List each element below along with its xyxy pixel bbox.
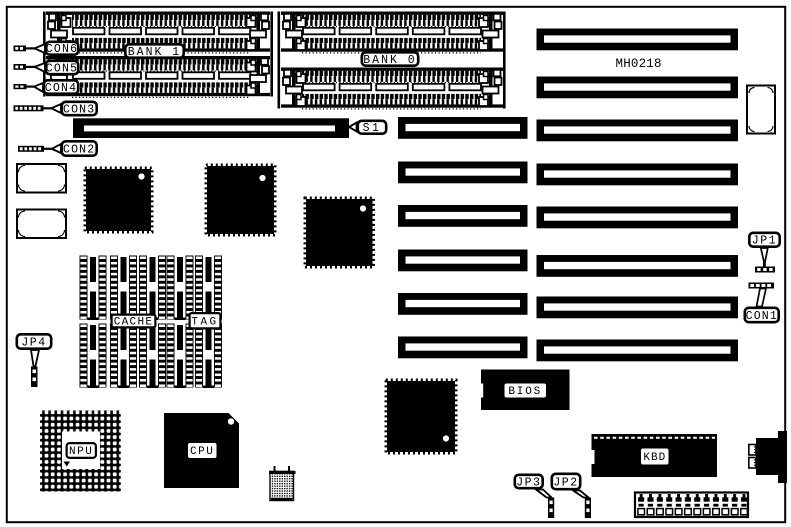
svg-text:CPU: CPU bbox=[190, 446, 214, 458]
svg-text:CACHE: CACHE bbox=[114, 317, 154, 329]
svg-text:NPU: NPU bbox=[69, 446, 93, 458]
svg-text:JP2: JP2 bbox=[553, 476, 578, 489]
svg-text:CON4: CON4 bbox=[45, 82, 77, 95]
svg-text:TAG: TAG bbox=[191, 317, 218, 329]
svg-text:KBD: KBD bbox=[643, 452, 666, 464]
svg-text:JP1: JP1 bbox=[752, 235, 777, 248]
svg-text:S1: S1 bbox=[363, 122, 382, 135]
svg-text:JP3: JP3 bbox=[516, 476, 541, 489]
svg-text:CON1: CON1 bbox=[746, 310, 778, 323]
svg-text:BANK 1: BANK 1 bbox=[128, 46, 181, 59]
svg-text:CON5: CON5 bbox=[46, 62, 78, 75]
svg-text:MH0218: MH0218 bbox=[616, 57, 662, 71]
svg-text:JP4: JP4 bbox=[21, 336, 46, 349]
svg-text:BANK 0: BANK 0 bbox=[363, 54, 416, 67]
svg-text:CON2: CON2 bbox=[63, 143, 95, 156]
svg-text:BIOS: BIOS bbox=[508, 386, 542, 398]
svg-text:CON3: CON3 bbox=[63, 103, 95, 116]
svg-text:CON6: CON6 bbox=[46, 43, 78, 56]
